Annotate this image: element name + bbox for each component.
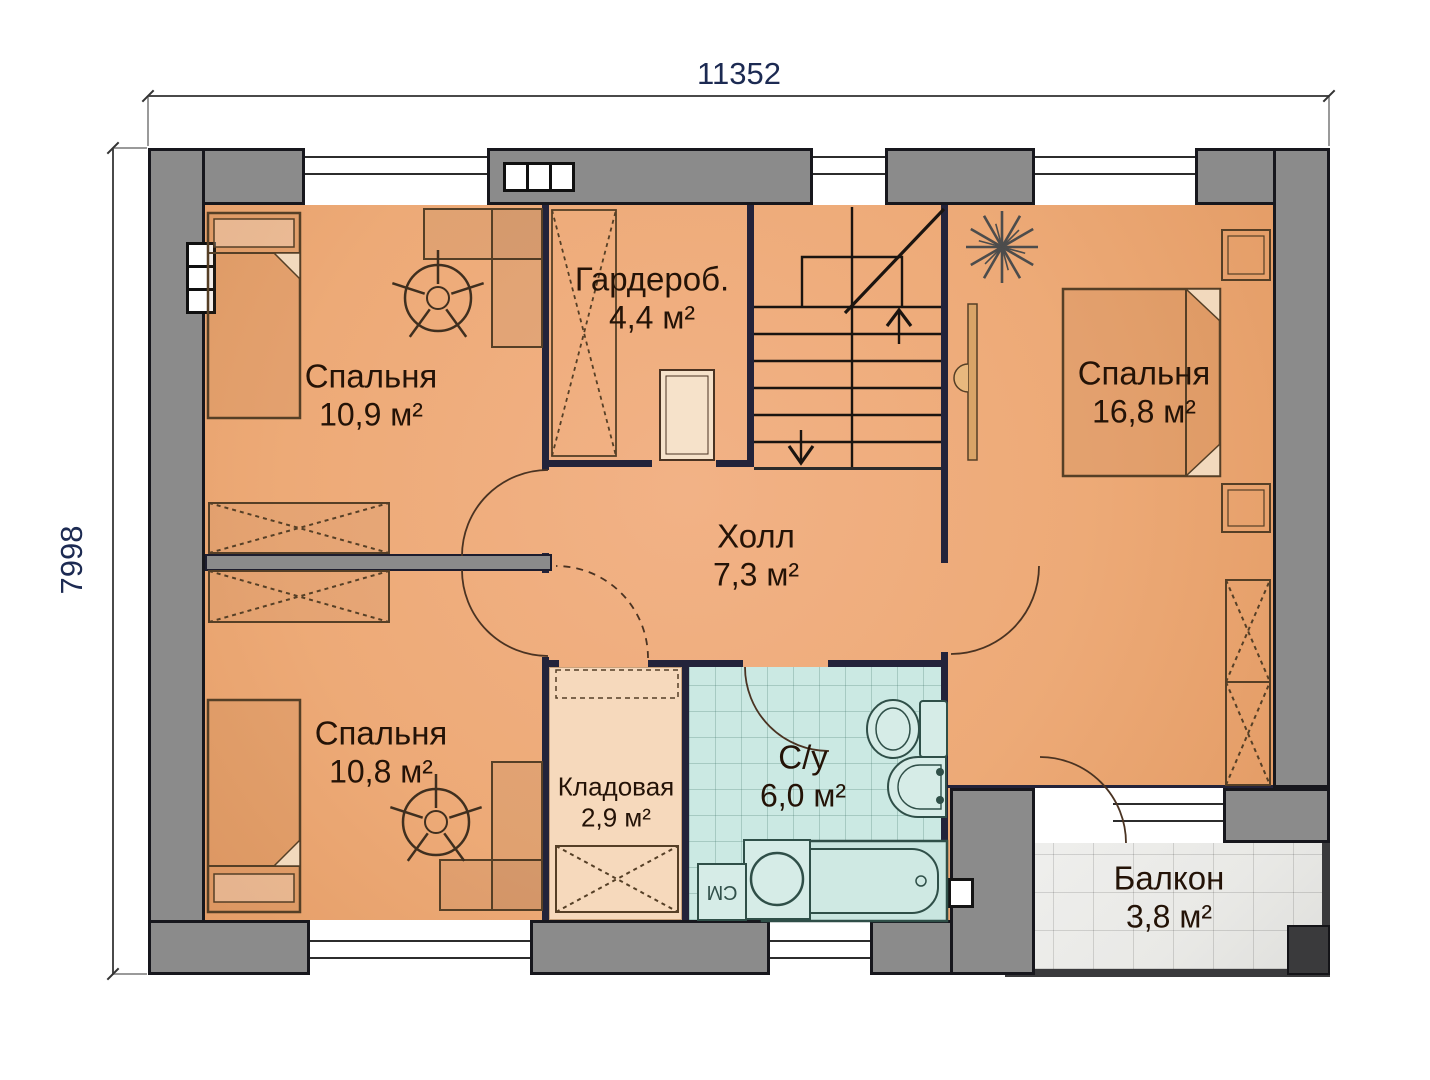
window [310, 920, 530, 975]
wall-niche [948, 878, 974, 908]
partition [542, 205, 549, 470]
vent-cell [552, 165, 572, 189]
dimension-width: 11352 [148, 56, 1330, 92]
vent-cell [529, 165, 549, 189]
vent-cell [189, 291, 213, 311]
room-area: 2,9 м² [558, 802, 674, 833]
room-name: Спальня [1078, 355, 1211, 394]
room-area: 7,3 м² [713, 557, 799, 595]
room-area: 4,4 м² [575, 300, 729, 338]
wall-bottom-b [530, 920, 770, 975]
dimension-line-top [148, 95, 1330, 97]
partition [648, 660, 743, 667]
vent-cell [189, 268, 213, 288]
partition [828, 660, 948, 667]
room-area: 10,9 м² [305, 397, 438, 435]
window-line [1113, 820, 1223, 822]
balcony-window [1113, 788, 1223, 843]
extension-line [147, 96, 149, 146]
partition [941, 652, 948, 920]
window-line [813, 156, 885, 158]
room-name: Гардероб. [575, 261, 729, 300]
window [813, 148, 885, 205]
partition [542, 657, 549, 920]
wall-corner-se [1223, 788, 1330, 843]
window [305, 148, 487, 205]
room-name: Холл [713, 518, 799, 557]
window-line [1113, 803, 1223, 805]
window-line [310, 957, 530, 959]
vent-grille-top [503, 162, 575, 192]
room-name: Спальня [305, 358, 438, 397]
partition [747, 205, 754, 467]
vent-grille-left [186, 242, 216, 314]
room-name: Кладовая [558, 771, 674, 802]
partition [549, 660, 559, 667]
vent-cell [506, 165, 526, 189]
label-hall: Холл 7,3 м² [713, 518, 799, 595]
room-area: 16,8 м² [1078, 394, 1211, 432]
floor-plan: 11352 7998 [0, 0, 1430, 1080]
label-bedroom-bottom-left: Спальня 10,8 м² [315, 715, 448, 792]
label-balcony: Балкон 3,8 м² [1114, 860, 1225, 937]
label-bathroom: С/у 6,0 м² [760, 739, 846, 816]
vent-cell [189, 245, 213, 265]
window-line [305, 156, 487, 158]
wall-bottom-a [148, 920, 310, 975]
extension-line [113, 973, 147, 975]
wall-top-c [885, 148, 1035, 205]
dimension-line-left [112, 148, 114, 975]
window-line [770, 957, 870, 959]
partition [716, 460, 747, 467]
room-area: 3,8 м² [1114, 899, 1225, 937]
window-line [305, 173, 487, 175]
room-name: Балкон [1114, 860, 1225, 899]
dimension-height: 7998 [54, 526, 90, 595]
partition-bedrooms [205, 554, 552, 571]
partition [682, 660, 689, 920]
stair-edge-line [754, 467, 941, 470]
room-area: 6,0 м² [760, 778, 846, 816]
window-line [770, 940, 870, 942]
label-storage: Кладовая 2,9 м² [558, 771, 674, 832]
label-bedroom-top-left: Спальня 10,9 м² [305, 358, 438, 435]
window [770, 920, 870, 975]
extension-line [113, 147, 147, 149]
window-line [310, 940, 530, 942]
room-area: 10,8 м² [315, 754, 448, 792]
balcony-corner-pier [1287, 925, 1330, 975]
partition [941, 205, 948, 563]
window-line [813, 173, 885, 175]
room-name: С/у [760, 739, 846, 778]
room-name: Спальня [315, 715, 448, 754]
window-line [1035, 156, 1195, 158]
window-line [1035, 173, 1195, 175]
extension-line [1328, 96, 1330, 146]
partition [549, 460, 652, 467]
wall-right [1273, 148, 1330, 788]
window [1035, 148, 1195, 205]
balcony-door-opening [1035, 788, 1113, 843]
washing-machine-label: СМ [700, 868, 744, 916]
label-wardrobe-room: Гардероб. 4,4 м² [575, 261, 729, 338]
label-bedroom-right: Спальня 16,8 м² [1078, 355, 1211, 432]
bedroom-south-edge [948, 785, 1273, 788]
